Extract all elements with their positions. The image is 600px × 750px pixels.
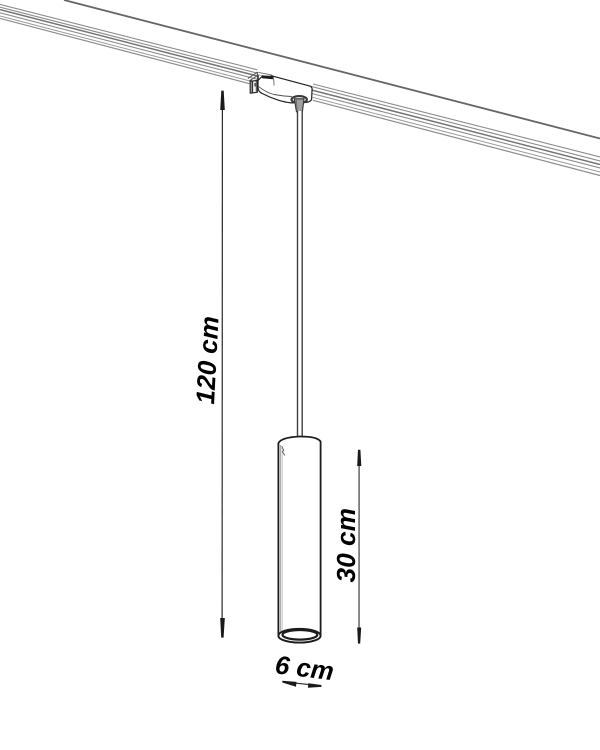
- svg-text:120 cm: 120 cm: [190, 315, 225, 405]
- svg-text:30 cm: 30 cm: [331, 508, 361, 583]
